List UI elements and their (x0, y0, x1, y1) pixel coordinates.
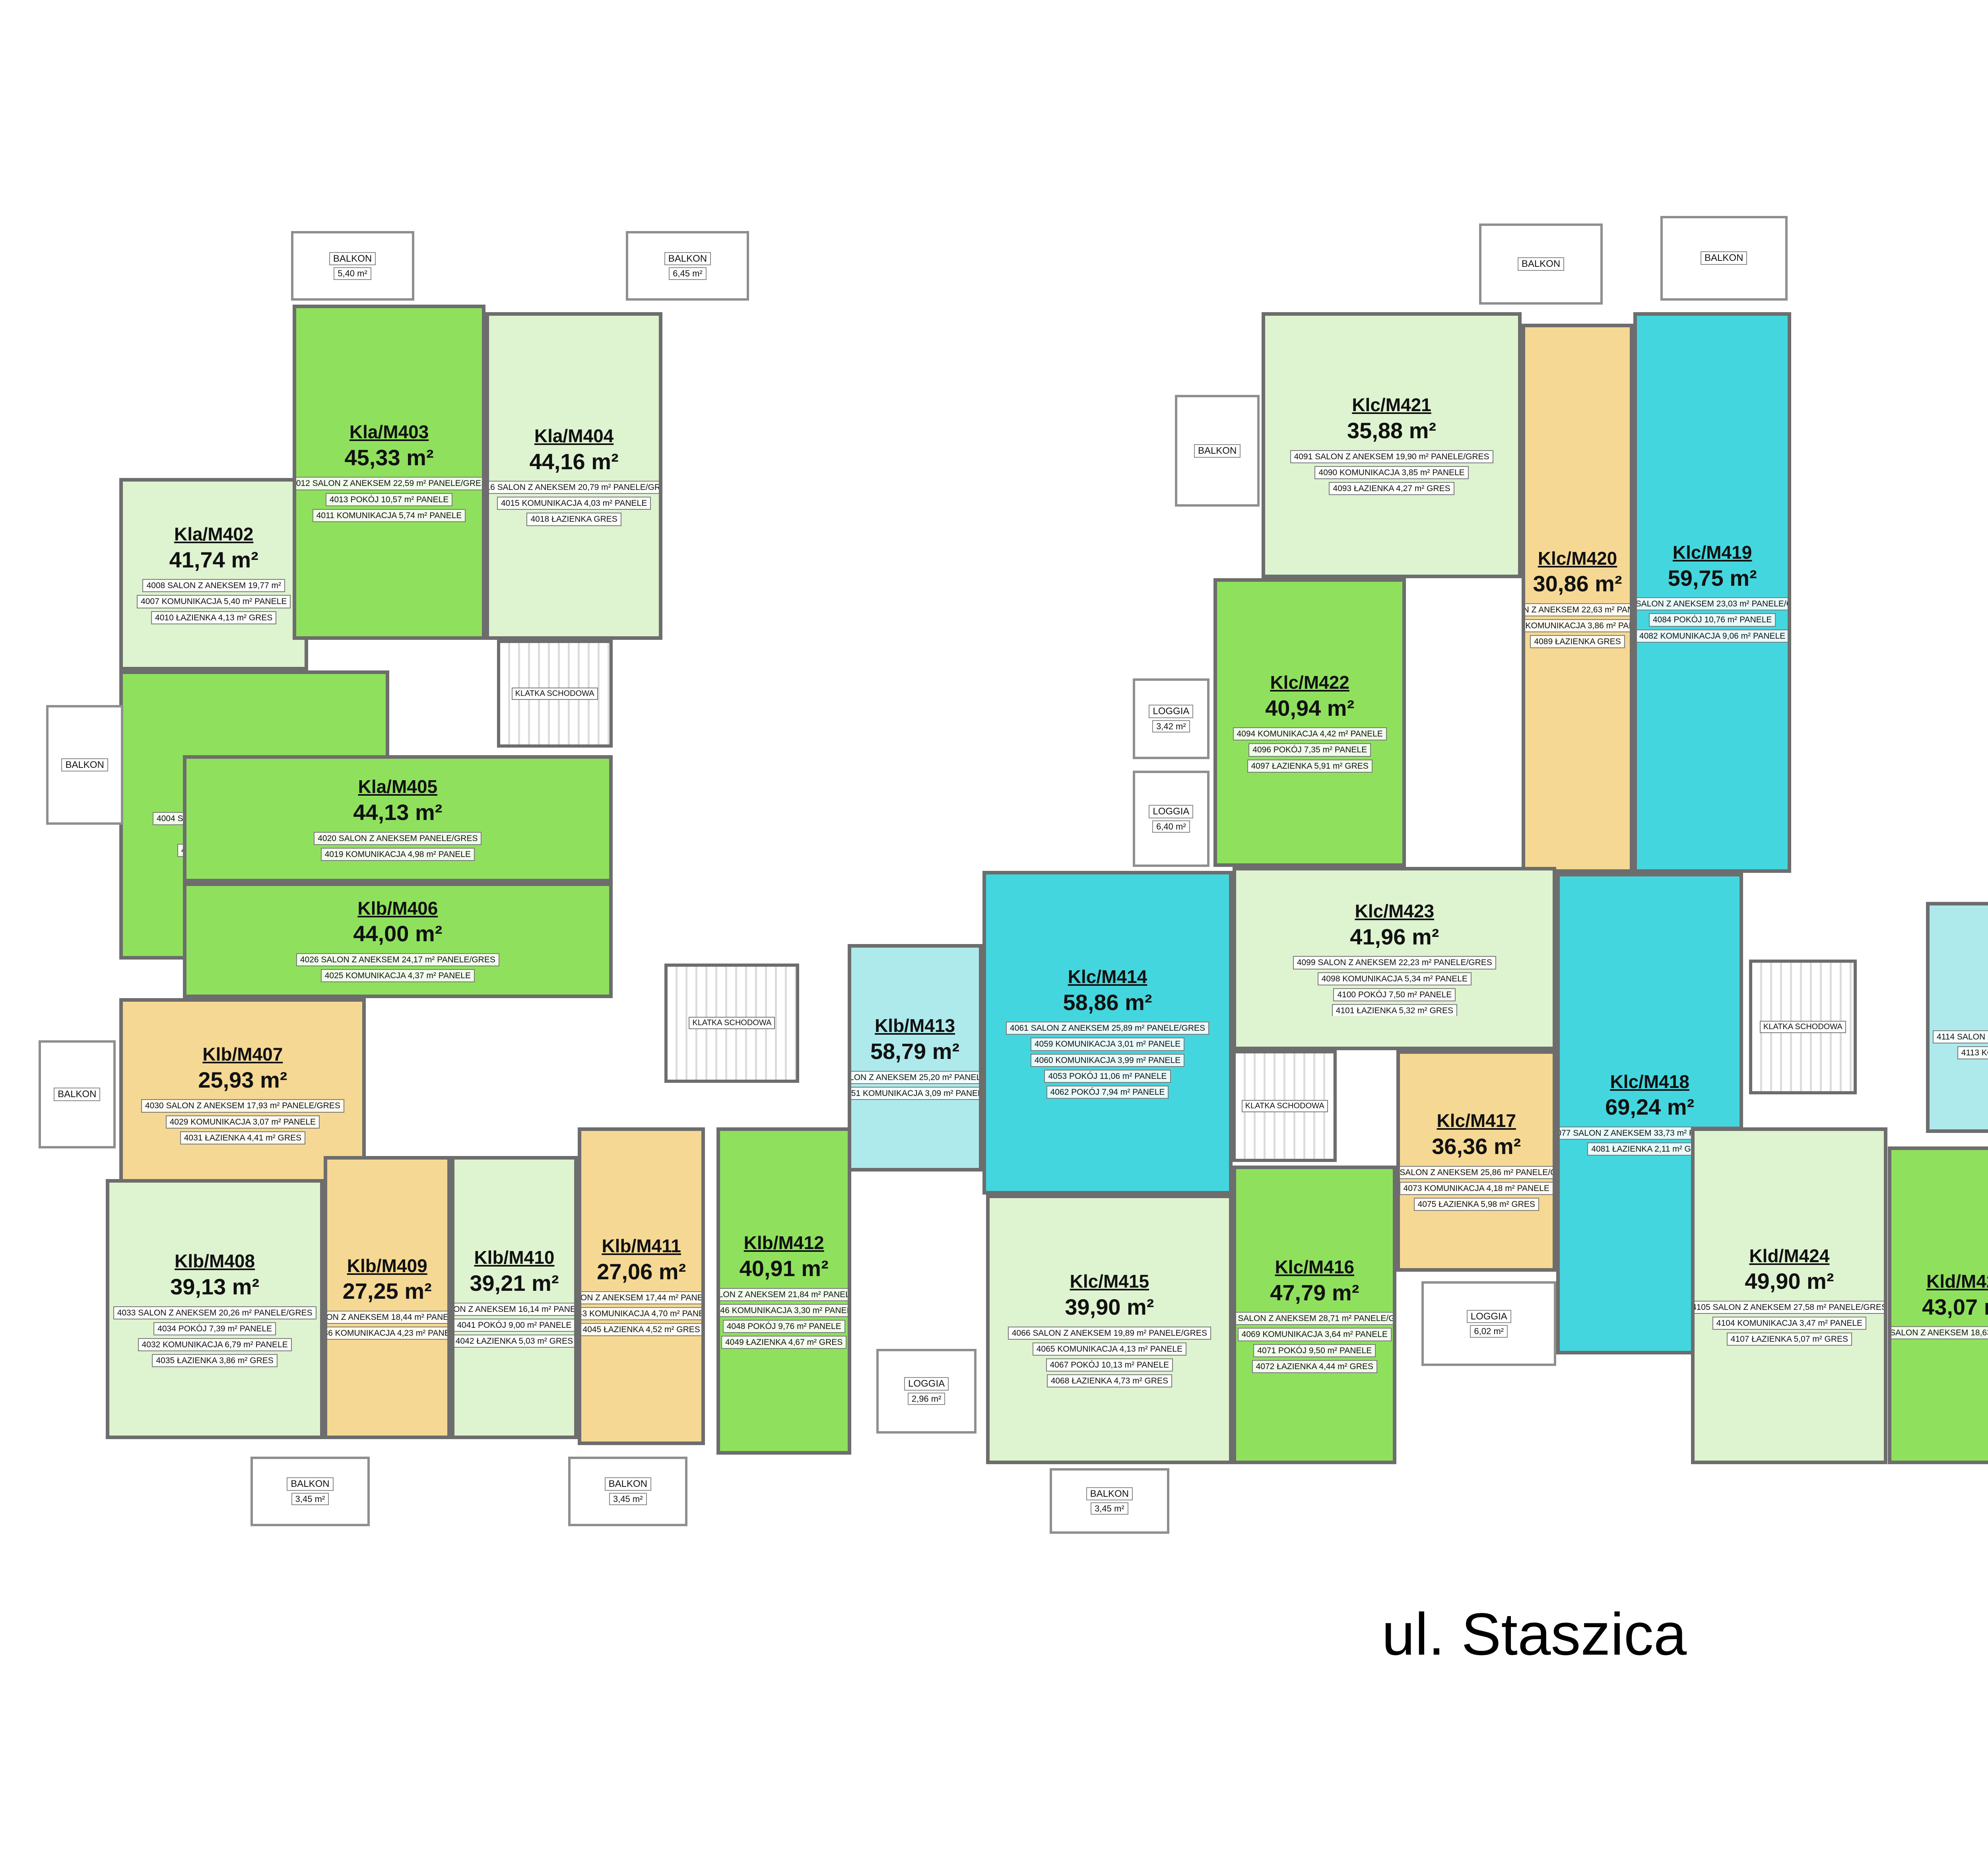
balcony: BALKON (1479, 223, 1602, 305)
apartment-id: Kla/M403 (349, 422, 429, 442)
room-label: 4052 SALON Z ANEKSEM 25,20 m² PANELE/GRE… (848, 1071, 982, 1084)
room-label: 4016 SALON Z ANEKSEM 20,79 m² PANELE/GRE… (485, 481, 663, 494)
apartment-area: 45,33 m² (344, 445, 433, 470)
apartment-area: 27,06 m² (597, 1259, 686, 1284)
apartment-area: 40,91 m² (740, 1256, 829, 1281)
room-label: 4073 KOMUNIKACJA 4,18 m² PANELE (1400, 1182, 1553, 1195)
balcony-name: BALKON (664, 252, 711, 266)
stairwell: KLATKA SCHODOWA (664, 964, 799, 1083)
balcony-name: BALKON (329, 252, 376, 266)
apartment-room-list: 4070 SALON Z ANEKSEM 28,71 m² PANELE/GRE… (1233, 1312, 1396, 1373)
room-label: 4065 KOMUNIKACJA 4,13 m² PANELE (1033, 1342, 1186, 1356)
room-label: 4069 KOMUNIKACJA 3,64 m² PANELE (1238, 1328, 1392, 1341)
apartment-unit-Kla-M403: Kla/M40345,33 m²4012 SALON Z ANEKSEM 22,… (293, 305, 485, 640)
room-label: 4067 POKÓJ 10,13 m² PANELE (1046, 1358, 1173, 1372)
room-label: 4030 SALON Z ANEKSEM 17,93 m² PANELE/GRE… (141, 1099, 344, 1112)
balcony-area: 2,96 m² (908, 1393, 945, 1405)
balcony-name: LOGGIA (1149, 805, 1193, 818)
apartment-room-list: 4083 SALON Z ANEKSEM 23,03 m² PANELE/GRE… (1633, 597, 1791, 643)
apartment-area: 43,07 m² (1922, 1295, 1988, 1319)
apartment-unit-Klc-M421: Klc/M42135,88 m²4091 SALON Z ANEKSEM 19,… (1262, 312, 1522, 578)
room-label: 4060 KOMUNIKACJA 3,99 m² PANELE (1031, 1054, 1184, 1067)
balcony-name: BALKON (1518, 257, 1564, 271)
room-label: 4072 ŁAZIENKA 4,44 m² GRES (1252, 1360, 1377, 1373)
balcony: BALKON3,45 m² (568, 1457, 687, 1526)
balcony: BALKON6,45 m² (626, 231, 749, 300)
room-label: 4087 KOMUNIKACJA 3,86 m² PANELE (1522, 619, 1633, 632)
room-label: 4013 POKÓJ 10,57 m² PANELE (326, 493, 453, 506)
room-label: 4088 SALON Z ANEKSEM 22,63 m² PANELE/GRE… (1522, 603, 1633, 616)
stairwell-label: KLATKA SCHODOWA (1760, 1021, 1846, 1033)
apartment-unit-Klb-M408: Klb/M40839,13 m²4033 SALON Z ANEKSEM 20,… (106, 1179, 323, 1439)
room-label: 4096 POKÓJ 7,35 m² PANELE (1248, 743, 1371, 756)
room-label: 4059 KOMUNIKACJA 3,01 m² PANELE (1031, 1037, 1184, 1051)
apartment-id: Klb/M409 (347, 1256, 427, 1276)
room-label: 4007 KOMUNIKACJA 5,40 m² PANELE (137, 595, 291, 608)
loggia: LOGGIA6,02 m² (1421, 1281, 1556, 1366)
apartment-unit-Klc-M419: Klc/M41959,75 m²4083 SALON Z ANEKSEM 23,… (1633, 312, 1791, 873)
apartment-room-list: 4114 SALON Z ANEKSEM 21,91 m² PANELE/GRE… (1933, 1030, 1988, 1059)
room-label: 4097 ŁAZIENKA 5,91 m² GRES (1247, 760, 1373, 773)
room-label: 4089 ŁAZIENKA GRES (1530, 635, 1625, 648)
apartment-id: Klc/M422 (1270, 672, 1349, 693)
balcony: BALKON3,45 m² (250, 1457, 370, 1526)
apartment-id: Klb/M406 (357, 898, 438, 919)
apartment-room-list: 4088 SALON Z ANEKSEM 22,63 m² PANELE/GRE… (1522, 603, 1633, 649)
apartment-room-list: 4099 SALON Z ANEKSEM 22,23 m² PANELE/GRE… (1293, 956, 1496, 1016)
balcony-name: BALKON (54, 1088, 100, 1101)
apartment-room-list: 4105 SALON Z ANEKSEM 27,58 m² PANELE/GRE… (1691, 1301, 1887, 1346)
apartment-area: 30,86 m² (1533, 571, 1622, 596)
apartment-id: Klc/M415 (1070, 1271, 1149, 1292)
balcony: BALKON5,40 m² (291, 231, 414, 300)
apartment-unit-Kla-M405: Kla/M40544,13 m²4020 SALON Z ANEKSEM PAN… (183, 755, 612, 882)
room-label: 4037 SALON Z ANEKSEM 18,44 m² PANELE/GRE… (324, 1311, 451, 1324)
balcony-area: 5,40 m² (334, 267, 371, 280)
room-label: 4040 SALON Z ANEKSEM 16,14 m² PANELE/GRE… (451, 1303, 578, 1316)
balcony-area: 6,40 m² (1152, 820, 1190, 833)
balcony-name: BALKON (61, 758, 108, 772)
room-label: 4061 SALON Z ANEKSEM 25,89 m² PANELE/GRE… (1006, 1022, 1209, 1035)
apartment-area: 44,00 m² (353, 921, 442, 946)
apartment-area: 58,79 m² (870, 1039, 959, 1064)
room-label: 4100 POKÓJ 7,50 m² PANELE (1333, 988, 1456, 1001)
room-label: 4071 POKÓJ 9,50 m² PANELE (1253, 1344, 1376, 1357)
room-label: 4026 SALON Z ANEKSEM 24,17 m² PANELE/GRE… (296, 953, 499, 966)
apartment-id: Klc/M421 (1352, 395, 1431, 415)
room-label: 4066 SALON Z ANEKSEM 19,89 m² PANELE/GRE… (1008, 1327, 1211, 1340)
apartment-id: Kla/M405 (358, 777, 437, 797)
apartment-room-list: 4030 SALON Z ANEKSEM 17,93 m² PANELE/GRE… (141, 1099, 344, 1144)
apartment-id: Klc/M423 (1355, 901, 1434, 921)
apartment-id: Klb/M413 (875, 1016, 955, 1036)
balcony-area: 3,45 m² (609, 1493, 647, 1505)
apartment-unit-Kla-M402: Kla/M40241,74 m²4008 SALON Z ANEKSEM 19,… (119, 478, 308, 671)
apartment-id: Klb/M408 (175, 1251, 255, 1271)
room-label: 4048 POKÓJ 9,76 m² PANELE (723, 1320, 845, 1333)
apartment-unit-Kld-M425: Kld/M42543,07 m²4109 SALON Z ANEKSEM 18,… (1888, 1146, 1988, 1464)
street-title: ul. Staszica (1382, 1600, 1687, 1669)
apartment-unit-Klc-M423: Klc/M42341,96 m²4099 SALON Z ANEKSEM 22,… (1233, 867, 1556, 1050)
room-label: 4062 POKÓJ 7,94 m² PANELE (1046, 1086, 1169, 1099)
room-label: 4094 KOMUNIKACJA 4,42 m² PANELE (1233, 727, 1387, 740)
apartment-unit-Klc-M415: Klc/M41539,90 m²4066 SALON Z ANEKSEM 19,… (986, 1195, 1233, 1464)
apartment-area: 44,13 m² (353, 800, 442, 825)
room-label: 4068 ŁAZIENKA 4,73 m² GRES (1047, 1374, 1172, 1387)
apartment-id: Kla/M404 (534, 426, 613, 446)
apartment-id: Klb/M411 (602, 1236, 681, 1256)
apartment-unit-Klc-M422: Klc/M42240,94 m²4094 KOMUNIKACJA 4,42 m²… (1213, 578, 1406, 867)
apartment-area: 39,90 m² (1065, 1295, 1154, 1319)
apartment-unit-Klb-M410: Klb/M41039,21 m²4040 SALON Z ANEKSEM 16,… (451, 1156, 578, 1439)
balcony-name: BALKON (605, 1477, 651, 1491)
apartment-room-list: 4052 SALON Z ANEKSEM 25,20 m² PANELE/GRE… (848, 1071, 982, 1100)
balcony: BALKON (46, 705, 123, 824)
apartment-id: Kld/M424 (1749, 1246, 1829, 1266)
balcony-name: BALKON (287, 1477, 333, 1491)
balcony: BALKON3,45 m² (1050, 1468, 1169, 1534)
room-label: 4045 ŁAZIENKA 4,52 m² GRES (579, 1323, 704, 1336)
apartment-area: 69,24 m² (1605, 1095, 1694, 1119)
room-label: 4034 POKÓJ 7,39 m² PANELE (153, 1322, 276, 1335)
apartment-area: 59,75 m² (1668, 566, 1757, 591)
room-label: 4104 KOMUNIKACJA 3,47 m² PANELE (1712, 1317, 1866, 1330)
room-label: 4044 SALON Z ANEKSEM 17,44 m² PANELE/GRE… (578, 1291, 705, 1304)
balcony-name: BALKON (1086, 1487, 1133, 1501)
room-label: 4012 SALON Z ANEKSEM 22,59 m² PANELE/GRE… (293, 477, 485, 490)
room-label: 4114 SALON Z ANEKSEM 21,91 m² PANELE/GRE… (1933, 1030, 1988, 1043)
floor-plan-canvas: Kla/M40143,01 m²4004 SALON Z ANEKSEM 18,… (0, 0, 1988, 1869)
apartment-unit-Klb-M412: Klb/M41240,91 m²4047 SALON Z ANEKSEM 21,… (716, 1127, 851, 1455)
apartment-room-list: 4012 SALON Z ANEKSEM 22,59 m² PANELE/GRE… (293, 477, 485, 522)
apartment-unit-Klc-M417: Klc/M41736,36 m²4074 SALON Z ANEKSEM 25,… (1396, 1050, 1556, 1272)
apartment-id: Klc/M414 (1068, 967, 1147, 987)
apartment-area: 25,93 m² (198, 1068, 287, 1092)
room-label: 4015 KOMUNIKACJA 4,03 m² PANELE (497, 497, 651, 510)
apartment-area: 41,96 m² (1350, 925, 1439, 949)
room-label: 4099 SALON Z ANEKSEM 22,23 m² PANELE/GRE… (1293, 956, 1496, 969)
balcony: BALKON (1660, 216, 1788, 301)
room-label: 4020 SALON Z ANEKSEM PANELE/GRES (314, 832, 481, 845)
floor-plan-page: { "title": { "street_label": "ul. Staszi… (0, 0, 1988, 1869)
room-label: 4018 ŁAZIENKA GRES (526, 513, 621, 526)
apartment-room-list: 4040 SALON Z ANEKSEM 16,14 m² PANELE/GRE… (451, 1303, 578, 1348)
apartment-id: Klb/M412 (744, 1233, 824, 1253)
apartment-room-list: 4061 SALON Z ANEKSEM 25,89 m² PANELE/GRE… (1006, 1022, 1209, 1099)
stairwell: KLATKA SCHODOWA (497, 640, 613, 748)
room-label: 4025 KOMUNIKACJA 4,37 m² PANELE (321, 969, 475, 982)
room-label: 4029 KOMUNIKACJA 3,07 m² PANELE (166, 1115, 320, 1129)
apartment-room-list: 4026 SALON Z ANEKSEM 24,17 m² PANELE/GRE… (296, 953, 499, 982)
room-label: 4105 SALON Z ANEKSEM 27,58 m² PANELE/GRE… (1691, 1301, 1887, 1314)
room-label: 4109 SALON Z ANEKSEM 18,63 m² PANELE/GRE… (1888, 1326, 1988, 1339)
balcony-area: 3,42 m² (1152, 720, 1190, 732)
apartment-unit-Kla-M404: Kla/M40444,16 m²4016 SALON Z ANEKSEM 20,… (485, 312, 663, 640)
room-label: 4113 KOMUNIKACJA 2,90 m² PANELE (1957, 1046, 1988, 1059)
apartment-room-list: 4044 SALON Z ANEKSEM 17,44 m² PANELE/GRE… (578, 1291, 705, 1337)
loggia: LOGGIA6,40 m² (1133, 771, 1210, 867)
loggia: LOGGIA3,42 m² (1133, 678, 1210, 760)
stairwell-label: KLATKA SCHODOWA (512, 688, 598, 700)
room-label: 4049 ŁAZIENKA 4,67 m² GRES (721, 1336, 846, 1349)
apartment-area: 35,88 m² (1347, 418, 1436, 443)
apartment-room-list: 4091 SALON Z ANEKSEM 19,90 m² PANELE/GRE… (1290, 450, 1493, 495)
apartment-area: 44,16 m² (530, 449, 619, 474)
room-label: 4084 POKÓJ 10,76 m² PANELE (1649, 613, 1776, 626)
apartment-area: 58,86 m² (1063, 990, 1152, 1015)
room-label: 4032 KOMUNIKACJA 6,79 m² PANELE (138, 1338, 292, 1351)
balcony-name: LOGGIA (1467, 1310, 1511, 1323)
room-label: 4074 SALON Z ANEKSEM 25,86 m² PANELE/GRE… (1396, 1166, 1556, 1179)
room-label: 4042 ŁAZIENKA 5,03 m² GRES (452, 1335, 577, 1348)
room-label: 4019 KOMUNIKACJA 4,98 m² PANELE (321, 848, 475, 861)
stairwell-label: KLATKA SCHODOWA (1242, 1100, 1328, 1112)
apartment-area: 47,79 m² (1270, 1280, 1359, 1305)
apartment-area: 41,74 m² (169, 548, 258, 572)
room-label: 4010 ŁAZIENKA 4,13 m² GRES (151, 611, 276, 624)
apartment-room-list: 4020 SALON Z ANEKSEM PANELE/GRES4019 KOM… (314, 832, 481, 861)
apartment-area: 27,25 m² (343, 1279, 432, 1304)
apartment-unit-Klb-M409: Klb/M40927,25 m²4037 SALON Z ANEKSEM 18,… (324, 1156, 451, 1439)
room-label: 4008 SALON Z ANEKSEM 19,77 m² (142, 579, 285, 592)
room-label: 4070 SALON Z ANEKSEM 28,71 m² PANELE/GRE… (1233, 1312, 1396, 1325)
apartment-unit-Klb-M413: Klb/M41358,79 m²4052 SALON Z ANEKSEM 25,… (848, 944, 982, 1172)
apartment-id: Kla/M402 (174, 524, 253, 544)
room-label: 4091 SALON Z ANEKSEM 19,90 m² PANELE/GRE… (1290, 450, 1493, 463)
room-label: 4082 KOMUNIKACJA 9,06 m² PANELE (1635, 629, 1789, 643)
room-label: 4031 ŁAZIENKA 4,41 m² GRES (180, 1131, 305, 1144)
apartment-unit-Klb-M411: Klb/M41127,06 m²4044 SALON Z ANEKSEM 17,… (578, 1127, 705, 1445)
apartment-unit-Kld-M424: Kld/M42449,90 m²4105 SALON Z ANEKSEM 27,… (1691, 1127, 1887, 1465)
apartment-unit-Klb-M406: Klb/M40644,00 m²4026 SALON Z ANEKSEM 24,… (183, 882, 612, 998)
room-label: 4101 ŁAZIENKA 5,32 m² GRES (1332, 1004, 1457, 1016)
room-label: 4041 POKÓJ 9,00 m² PANELE (453, 1319, 575, 1332)
balcony-area: 3,45 m² (291, 1493, 329, 1505)
room-label: 4035 ŁAZIENKA 3,86 m² GRES (152, 1354, 277, 1367)
room-label: 4043 KOMUNIKACJA 4,70 m² PANELE (578, 1307, 705, 1320)
apartment-room-list: 4094 KOMUNIKACJA 4,42 m² PANELE4096 POKÓ… (1233, 727, 1387, 773)
apartment-unit-Klc-M416: Klc/M41647,79 m²4070 SALON Z ANEKSEM 28,… (1233, 1166, 1396, 1464)
apartment-room-list: 4037 SALON Z ANEKSEM 18,44 m² PANELE/GRE… (324, 1311, 451, 1340)
balcony: BALKON (1175, 395, 1260, 507)
balcony-name: LOGGIA (1149, 705, 1193, 718)
apartment-id: Klc/M418 (1610, 1072, 1689, 1092)
apartment-area: 39,21 m² (470, 1271, 559, 1296)
balcony-name: BALKON (1194, 444, 1241, 458)
balcony-area: 6,02 m² (1470, 1325, 1508, 1337)
room-label: 4107 ŁAZIENKA 5,07 m² GRES (1727, 1333, 1852, 1346)
room-label: 4053 POKÓJ 11,06 m² PANELE (1044, 1070, 1171, 1083)
apartment-room-list: 4016 SALON Z ANEKSEM 20,79 m² PANELE/GRE… (485, 481, 663, 526)
room-label: 4051 KOMUNIKACJA 3,09 m² PANELE (848, 1087, 982, 1100)
apartment-room-list: 4074 SALON Z ANEKSEM 25,86 m² PANELE/GRE… (1396, 1166, 1556, 1211)
apartment-id: Klc/M417 (1437, 1111, 1516, 1131)
room-label: 4011 KOMUNIKACJA 5,74 m² PANELE (313, 509, 466, 522)
stairwell: KLATKA SCHODOWA (1749, 960, 1857, 1094)
apartment-room-list: 4033 SALON Z ANEKSEM 20,26 m² PANELE/GRE… (113, 1306, 316, 1368)
room-label: 4033 SALON Z ANEKSEM 20,26 m² PANELE/GRE… (113, 1306, 316, 1319)
apartment-id: Klc/M420 (1538, 548, 1617, 569)
room-label: 4047 SALON Z ANEKSEM 21,84 m² PANELE/GRE… (716, 1288, 851, 1301)
stairwell-label: KLATKA SCHODOWA (689, 1017, 775, 1029)
balcony-name: LOGGIA (904, 1377, 949, 1391)
stairwell: KLATKA SCHODOWA (1233, 1050, 1337, 1162)
loggia: LOGGIA2,96 m² (876, 1349, 977, 1434)
apartment-unit-Klc-M420: Klc/M42030,86 m²4088 SALON Z ANEKSEM 22,… (1522, 324, 1633, 873)
apartment-id: Klc/M419 (1673, 542, 1752, 563)
apartment-area: 49,90 m² (1745, 1269, 1834, 1294)
room-label: 4098 KOMUNIKACJA 5,34 m² PANELE (1318, 972, 1472, 985)
apartment-area: 40,94 m² (1265, 696, 1354, 721)
apartment-room-list: 4008 SALON Z ANEKSEM 19,77 m²4007 KOMUNI… (137, 579, 291, 624)
balcony-area: 3,45 m² (1091, 1502, 1128, 1515)
apartment-room-list: 4066 SALON Z ANEKSEM 19,89 m² PANELE/GRE… (1008, 1327, 1211, 1388)
apartment-id: Klc/M416 (1275, 1257, 1354, 1277)
apartment-room-list: 4109 SALON Z ANEKSEM 18,63 m² PANELE/GRE… (1888, 1326, 1988, 1339)
room-label: 4046 KOMUNIKACJA 3,30 m² PANELE (716, 1304, 851, 1317)
balcony: BALKON (39, 1040, 116, 1148)
balcony-name: BALKON (1701, 251, 1747, 265)
apartment-id: Klb/M410 (474, 1247, 554, 1268)
room-label: 4083 SALON Z ANEKSEM 23,03 m² PANELE/GRE… (1633, 597, 1791, 610)
room-label: 4093 ŁAZIENKA 4,27 m² GRES (1329, 482, 1454, 495)
balcony-area: 6,45 m² (669, 267, 707, 280)
apartment-area: 36,36 m² (1432, 1134, 1521, 1159)
apartment-id: Kld/M425 (1926, 1271, 1988, 1292)
apartment-id: Klb/M407 (202, 1044, 283, 1065)
apartment-area: 39,13 m² (170, 1274, 259, 1299)
apartment-room-list: 4047 SALON Z ANEKSEM 21,84 m² PANELE/GRE… (716, 1288, 851, 1349)
room-label: 4075 ŁAZIENKA 5,98 m² GRES (1414, 1198, 1539, 1211)
room-label: 4090 KOMUNIKACJA 3,85 m² PANELE (1314, 466, 1468, 479)
room-label: 4036 KOMUNIKACJA 4,23 m² PANELE (324, 1327, 451, 1340)
apartment-unit-Kld-M426: Kld/M42655,63 m²4114 SALON Z ANEKSEM 21,… (1926, 902, 1988, 1133)
apartment-unit-Klc-M414: Klc/M41458,86 m²4061 SALON Z ANEKSEM 25,… (982, 871, 1233, 1195)
